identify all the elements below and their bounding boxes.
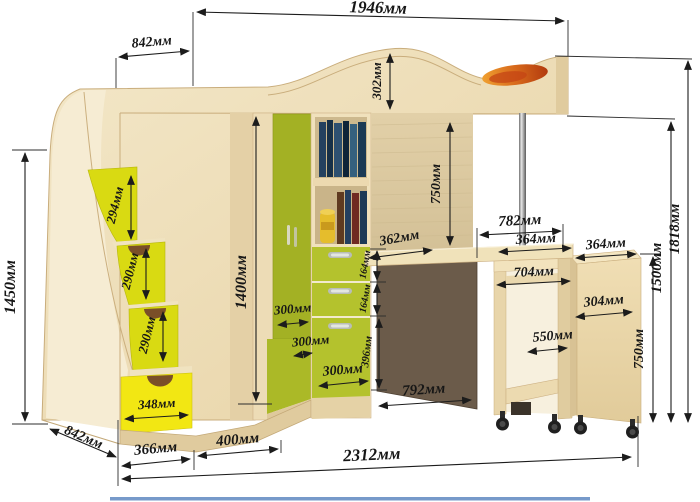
rolling-cabinet xyxy=(570,250,641,423)
door-handle-groove-2 xyxy=(294,227,297,247)
dim-top-depth: 842мм xyxy=(116,33,189,88)
dim-label-bottom-drawer: 348мм xyxy=(137,395,176,413)
mobile-desk-left-panel xyxy=(494,259,506,415)
bookshelf-divider xyxy=(313,178,369,186)
dim-label-cabinet-height: 750мм xyxy=(632,329,647,370)
dim-label-total-height: 1818мм xyxy=(667,204,683,255)
dim-label-cabinet-top: 364мм xyxy=(584,236,627,254)
caster-wheel xyxy=(574,415,587,435)
dim-label-bed-height: 1500мм xyxy=(649,243,665,294)
dim-label-mobile-desk: 704мм xyxy=(513,264,554,281)
dim-stairs-height: 1450мм xyxy=(2,150,48,424)
dim-label-under-desk: 792мм xyxy=(402,381,446,400)
drawer-3-handle-highlight xyxy=(331,325,349,328)
dim-label-total-width: 2312мм xyxy=(342,444,401,466)
bed-right-side-face xyxy=(556,57,568,114)
dim-label-headboard: 302мм xyxy=(369,62,384,100)
dim-label-stairs-height: 1450мм xyxy=(2,260,19,314)
dim-label-corner-width: 400мм xyxy=(215,430,260,450)
furniture-dimension-diagram: 1946мм 842мм 302мм 1450мм 294мм 290мм 29… xyxy=(0,0,700,502)
dim-label-top-width: 1946мм xyxy=(349,0,407,18)
under-desk-block xyxy=(511,402,531,415)
drawer-1-handle-highlight xyxy=(331,254,349,257)
door-handle-groove-1 xyxy=(287,225,290,245)
dim-label-desk-width: 782мм xyxy=(498,212,542,230)
loft-bed-drawing: 1946мм 842мм 302мм 1450мм 294мм 290мм 29… xyxy=(0,0,700,502)
bookcase-plinth xyxy=(312,396,370,419)
dim-label-stairs-width: 366мм xyxy=(133,439,178,459)
dim-label-top-depth: 842мм xyxy=(131,33,173,51)
footer-line xyxy=(110,497,590,501)
support-pole xyxy=(519,113,526,251)
dim-label-underbed: 750мм xyxy=(429,164,444,205)
drawer-2-handle-highlight xyxy=(331,290,349,293)
dim-label-bottom-depth: 842мм xyxy=(62,423,105,453)
dim-label-desk-section: 364мм xyxy=(514,231,556,248)
dim-label-wardrobe-height: 1400мм xyxy=(233,255,250,309)
